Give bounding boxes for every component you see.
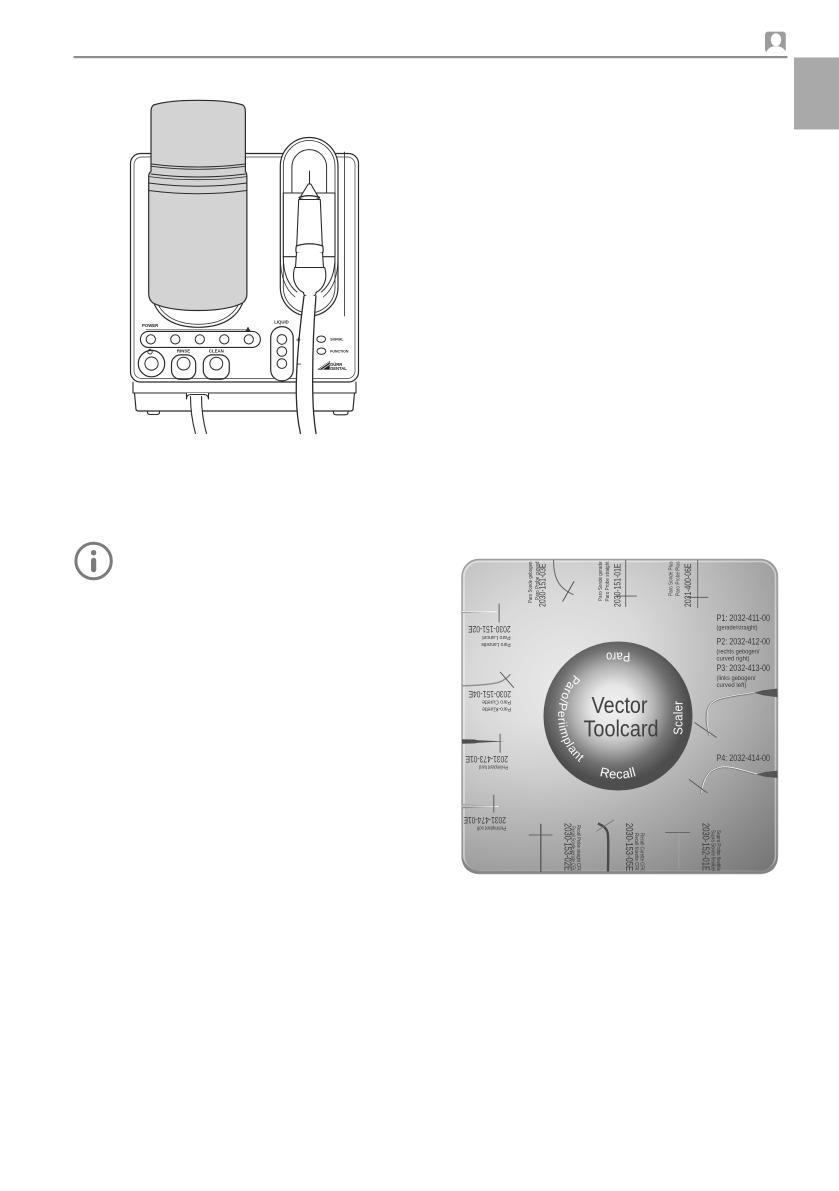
svg-text:DENTAL: DENTAL bbox=[330, 366, 347, 371]
svg-text:Toolcard: Toolcard bbox=[584, 716, 659, 742]
svg-text:Supra Probe flexible: Supra Probe flexible bbox=[715, 830, 721, 871]
svg-text:2030-151-04E: 2030-151-04E bbox=[469, 689, 512, 699]
svg-text:Periimplant soft: Periimplant soft bbox=[477, 824, 506, 830]
svg-text:Paro Sonde gerade: Paro Sonde gerade bbox=[598, 562, 604, 602]
svg-text:Recall Probe straight CFK: Recall Probe straight CFK bbox=[575, 825, 581, 871]
svg-text:P1: 2032-411-00: P1: 2032-411-00 bbox=[717, 613, 771, 623]
svg-text:SIGNAL: SIGNAL bbox=[330, 338, 344, 342]
svg-text:2030-151-02E: 2030-151-02E bbox=[468, 624, 511, 634]
svg-text:2031-473-01E: 2031-473-01E bbox=[466, 754, 509, 764]
svg-text:Paro: Paro bbox=[606, 650, 631, 665]
svg-text:Recall: Recall bbox=[599, 764, 638, 781]
svg-text:Vector: Vector bbox=[592, 692, 648, 718]
svg-text:LIQUID: LIQUID bbox=[274, 320, 289, 325]
svg-text:P2: 2032-412-00: P2: 2032-412-00 bbox=[717, 637, 771, 647]
svg-text:FUNCTION: FUNCTION bbox=[330, 350, 349, 354]
svg-text:CLEAN: CLEAN bbox=[209, 348, 224, 353]
svg-text:P4: 2032-414-00: P4: 2032-414-00 bbox=[717, 753, 771, 763]
svg-text:2030-153-05E: 2030-153-05E bbox=[623, 823, 634, 871]
svg-text:Recall Kürette CFK: Recall Kürette CFK bbox=[633, 833, 639, 871]
svg-text:–: – bbox=[297, 360, 302, 369]
svg-text:curved right): curved right) bbox=[717, 656, 750, 663]
svg-text:(links gebogen/: (links gebogen/ bbox=[717, 675, 756, 682]
svg-text:2030-151-01E: 2030-151-01E bbox=[613, 563, 623, 607]
svg-text:Paro Sonde gebogen: Paro Sonde gebogen bbox=[528, 562, 534, 604]
svg-text:Paro Lancet: Paro Lancet bbox=[482, 634, 511, 640]
svg-text:2030-151-03E: 2030-151-03E bbox=[538, 563, 548, 607]
svg-text:2031-400-06E: 2031-400-06E bbox=[683, 563, 693, 607]
svg-text:Periimplant hard: Periimplant hard bbox=[479, 763, 508, 769]
svg-text:(rechts gebogen/: (rechts gebogen/ bbox=[717, 649, 760, 656]
svg-text:Paro Lanzette: Paro Lanzette bbox=[481, 641, 511, 647]
svg-text:Paro Sonde Plus: Paro Sonde Plus bbox=[669, 561, 675, 596]
svg-text:Recall Sonde gerade CFK: Recall Sonde gerade CFK bbox=[570, 826, 576, 871]
svg-text:RINSE: RINSE bbox=[177, 348, 190, 353]
svg-text:(gerade/straight): (gerade/straight) bbox=[717, 625, 758, 632]
svg-text:Supra Sonde flexibel: Supra Sonde flexibel bbox=[710, 830, 716, 871]
svg-text:+: + bbox=[296, 336, 301, 345]
svg-text:Recall Curette CFK: Recall Curette CFK bbox=[639, 833, 645, 871]
svg-text:curved left): curved left) bbox=[717, 682, 747, 689]
svg-text:Scaler: Scaler bbox=[671, 700, 686, 734]
svg-text:Paro Curette: Paro Curette bbox=[482, 698, 511, 704]
svg-text:Paro Probe straight: Paro Probe straight bbox=[605, 561, 611, 601]
svg-text:Paro-Kürette: Paro-Kürette bbox=[482, 705, 511, 711]
svg-text:2031-474-01E: 2031-474-01E bbox=[464, 815, 507, 825]
svg-text:POWER: POWER bbox=[142, 323, 159, 328]
svg-text:P3: 2032-413-00: P3: 2032-413-00 bbox=[717, 663, 771, 673]
svg-text:Paro Probe Plus: Paro Probe Plus bbox=[676, 561, 682, 596]
svg-text:2030-152-01E: 2030-152-01E bbox=[700, 823, 711, 871]
